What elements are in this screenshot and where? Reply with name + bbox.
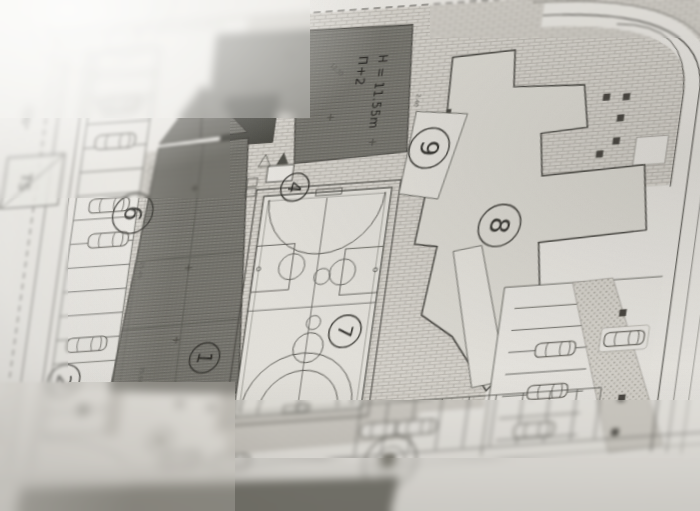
site-plan-photo: П+2 H = 11.55m 17.60 12.30 2.40 44.17 35… — [0, 0, 700, 511]
site-plan-svg: П+2 H = 11.55m 17.60 12.30 2.40 44.17 35… — [0, 0, 700, 511]
film-grain — [0, 0, 700, 511]
